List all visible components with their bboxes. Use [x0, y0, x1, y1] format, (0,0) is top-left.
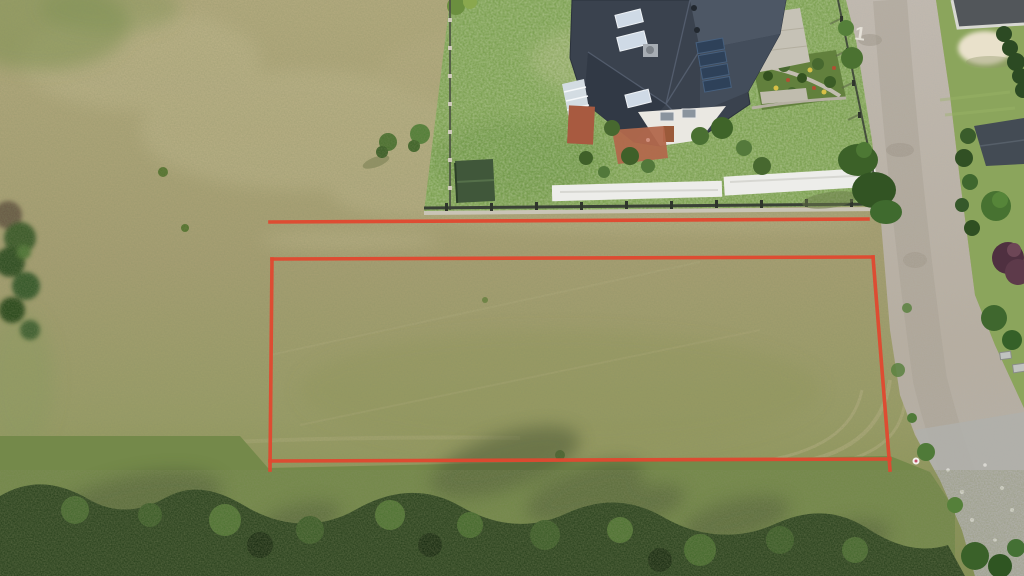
brick-annex: [567, 105, 595, 144]
sand-shadow: [966, 56, 1014, 68]
terracotta-patio: [612, 126, 668, 164]
scene-canvas: 1: [0, 0, 1024, 576]
boundary-bottom: [270, 459, 890, 461]
garden-furniture: [1013, 363, 1024, 373]
aerial-photo: 1: [0, 0, 1024, 576]
chimney: [694, 27, 700, 33]
garden-furniture: [1000, 351, 1012, 359]
boundary-top: [272, 257, 873, 259]
boundary-left: [270, 259, 272, 470]
survey-marker-dot: [915, 460, 918, 463]
chimney: [691, 5, 697, 11]
ac-fan: [646, 46, 654, 54]
garden-shed: [455, 159, 495, 203]
